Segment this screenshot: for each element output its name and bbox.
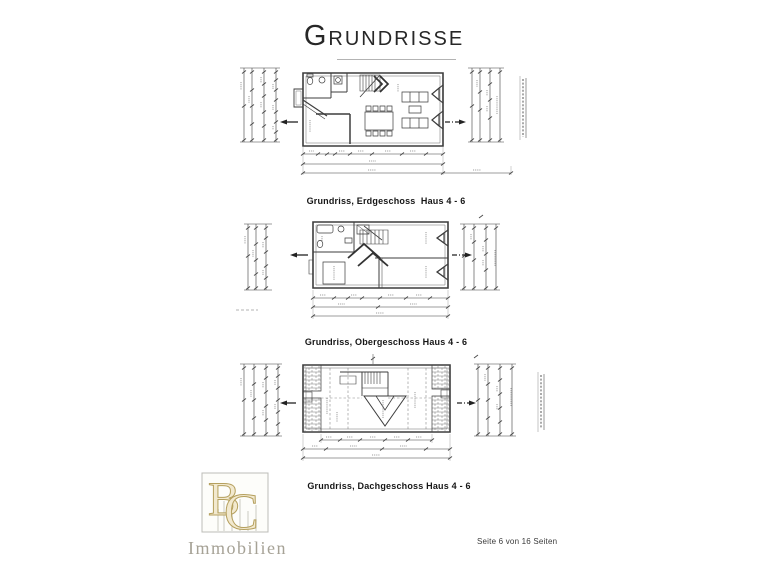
sofa-group xyxy=(402,92,428,128)
caption-erdgeschoss: Grundriss, Erdgeschoss Haus 4 - 6 xyxy=(230,196,542,206)
dimension-chain-right xyxy=(468,68,504,142)
window-symbols-right xyxy=(437,230,448,280)
staircase xyxy=(340,372,406,426)
logo-company-name: Immobilien xyxy=(188,538,284,559)
interior-partitions xyxy=(313,222,448,288)
dimension-chain-bottom xyxy=(236,290,450,319)
side-annotation-vertical xyxy=(538,372,544,432)
direction-arrow-left xyxy=(280,401,296,406)
room-label-marks xyxy=(322,232,426,280)
window-symbols-right xyxy=(432,85,443,129)
building-outline xyxy=(303,365,450,432)
logo-monogram-icon: B C xyxy=(188,471,284,535)
hatched-roof-walls xyxy=(303,365,450,432)
logo-letter-c: C xyxy=(224,484,259,535)
dimension-chain-left xyxy=(244,224,272,290)
dimension-chain-right xyxy=(474,355,516,436)
direction-arrow-right xyxy=(452,253,472,258)
wc-fixtures xyxy=(307,74,342,85)
page-title: Grundrisse xyxy=(0,22,768,51)
side-annotation-vertical xyxy=(520,76,526,140)
direction-arrow-right xyxy=(445,120,466,125)
bedroom-furniture xyxy=(323,262,345,284)
staircase xyxy=(360,75,388,97)
dimension-chain-left xyxy=(240,364,282,436)
floorplan-obergeschoss-drawing xyxy=(230,214,542,332)
direction-arrow-left xyxy=(280,120,298,125)
interior-partitions xyxy=(303,73,350,144)
dimension-chain-bottom xyxy=(301,434,452,461)
dimension-chain-left xyxy=(240,68,280,142)
direction-arrow-left xyxy=(290,253,308,258)
page-number-footer: Seite 6 von 16 Seiten xyxy=(477,537,557,546)
dimension-chain-bottom xyxy=(301,147,513,175)
floorplan-erdgeschoss-drawing xyxy=(230,56,542,196)
direction-arrow-right xyxy=(457,401,476,406)
company-logo: B C Immobilien xyxy=(188,471,284,559)
dining-set xyxy=(365,106,393,136)
floorplan-dachgeschoss-drawing xyxy=(230,352,548,476)
dimension-chain-right xyxy=(460,215,500,290)
caption-obergeschoss: Grundriss, Obergeschoss Haus 4 - 6 xyxy=(230,337,542,347)
dimension-tick-top xyxy=(371,354,375,364)
